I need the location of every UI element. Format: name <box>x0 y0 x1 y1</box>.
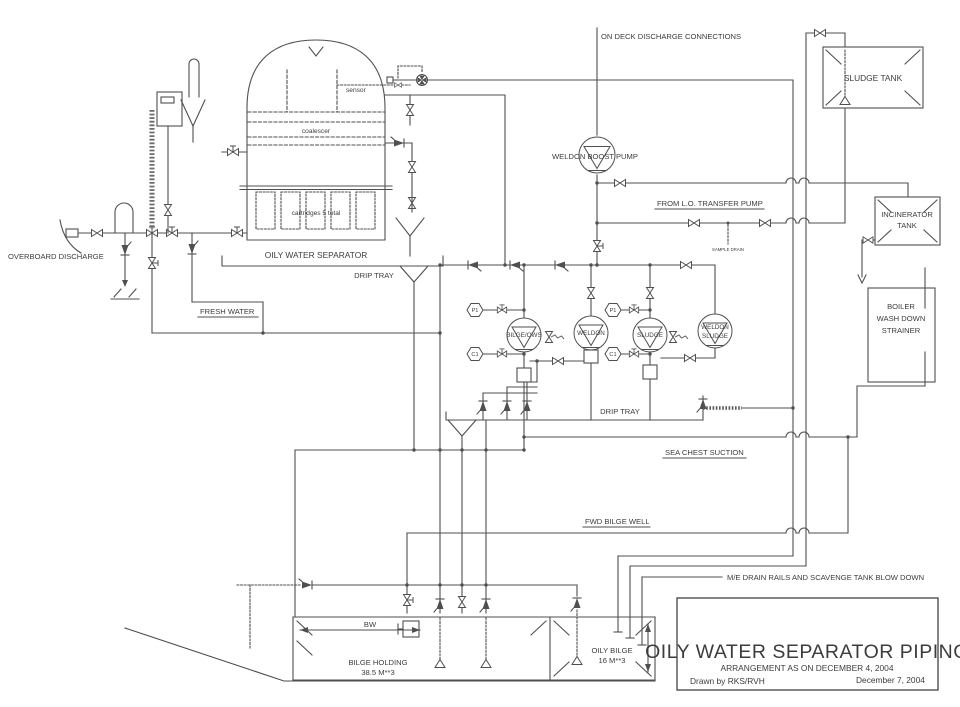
on-deck-label: ON DECK DISCHARGE CONNECTIONS <box>601 32 741 41</box>
boiler-label-2: WASH DOWN <box>877 314 926 323</box>
pump-weldon-sludge-label-2: SLUDGE <box>702 333 728 340</box>
fresh-water-check-valve-icon <box>188 241 198 254</box>
weldon-sludge-pump-icon <box>698 314 732 348</box>
drip-tray-lower-label: DRIP TRAY <box>600 407 640 416</box>
incinerator-outlet-valve-icon <box>863 237 873 243</box>
bilge-holding-label-2: 38.5 M**3 <box>361 668 394 677</box>
drawing-subtitle: ARRANGEMENT AS ON DECEMBER 4, 2004 <box>721 663 894 673</box>
fresh-water-label: FRESH WATER <box>200 307 255 316</box>
weldon-boost-pump-label: WELDON BOOST PUMP <box>552 152 638 161</box>
sludge-sounding-icon <box>840 97 850 105</box>
vent-valve-icon <box>407 105 414 116</box>
incinerator-label-1: INCINERATOR <box>881 210 933 219</box>
fresh-water-group: FRESH WATER <box>152 233 440 335</box>
shell-check-valve-icon <box>391 137 404 147</box>
weldon-riser-valve-icon <box>588 288 595 299</box>
manifold-check1-icon <box>468 261 481 271</box>
overboard-valve-icon <box>92 230 103 237</box>
sludge-tank-valve-icon <box>815 30 826 37</box>
sludge-relief-icon <box>670 332 689 343</box>
sensor-label: sensor <box>346 87 367 94</box>
pump-weldon-sludge-label-1: WELDON <box>701 324 729 331</box>
motor-valve-icon <box>417 75 428 86</box>
boiler-wash-down-strainer: BOILER WASH DOWN STRAINER <box>868 268 935 386</box>
controller-valve-icon <box>165 205 172 216</box>
gauge-p1-bilge-label: P1 <box>472 308 479 314</box>
bilge-holding-label-1: BILGE HOLDING <box>348 658 407 667</box>
oily-bilge-label-2: 16 M**3 <box>598 656 625 665</box>
oily-water-separator-vessel: sensor coalescer cartridges 5 total OILY… <box>222 40 410 260</box>
lo-line-valve2-icon <box>760 220 771 227</box>
bilge-sounding1-icon <box>435 660 445 668</box>
sludge-tank: SLUDGE TANK <box>806 30 923 109</box>
sludge-tank-label: SLUDGE TANK <box>844 73 903 83</box>
boiler-label-3: STRAINER <box>882 326 921 335</box>
drain-check-valve-icon <box>121 242 131 255</box>
gauge-p1-sludge-label: P1 <box>610 308 617 314</box>
drip-tray-upper-label: DRIP TRAY <box>354 271 394 280</box>
pump-sludge-label: SLUDGE <box>637 332 663 339</box>
cartridges-label: cartridges 5 total <box>292 210 341 217</box>
bilge-riser-valve2-icon <box>459 597 466 608</box>
sensor-valve-icon <box>394 83 401 88</box>
boost-suction-valve-icon <box>594 241 604 252</box>
title-block: OILY WATER SEPARATOR PIPING ARRANGEMENT … <box>645 598 960 690</box>
sample-drain-label: SAMPLE DRAIN <box>712 247 744 252</box>
bw-label: BW <box>364 620 377 629</box>
oily-bilge-check-icon <box>571 598 581 611</box>
bilge-sounding2-icon <box>481 660 491 668</box>
tank-top-check-icon <box>299 579 312 589</box>
gauge-c1-bilge-label: C1 <box>471 352 478 358</box>
me-drain-label: M/E DRAIN RAILS AND SCAVENGE TANK BLOW D… <box>727 573 924 582</box>
tray-drain-check-icon <box>697 399 707 412</box>
lo-line-valve1-icon <box>689 220 700 227</box>
incinerator-tank: INCINERATOR TANK <box>858 197 940 283</box>
overboard-discharge-group: OVERBOARD DISCHARGE <box>8 59 247 333</box>
weldon-sludge-outlet-valve-icon <box>685 355 696 362</box>
drawing-title: OILY WATER SEPARATOR PIPING <box>645 641 960 663</box>
piping-diagram: sensor coalescer cartridges 5 total OILY… <box>0 0 960 707</box>
drawn-by: Drawn by RKS/RVH <box>690 676 765 686</box>
bilge-riser-check2-icon <box>480 599 490 612</box>
manifold-check3-icon <box>555 261 568 271</box>
incinerator-label-2: TANK <box>897 221 917 230</box>
sludge-riser-valve-icon <box>647 288 654 299</box>
shell-drain-valve-icon <box>409 162 416 173</box>
diagram-canvas: sensor coalescer cartridges 5 total OILY… <box>0 0 960 707</box>
boiler-label-1: BOILER <box>887 302 915 311</box>
pump-weldon-label: WELDON <box>577 330 605 337</box>
gauge-valve3-icon <box>629 305 638 313</box>
coalescer-label: coalescer <box>302 128 331 135</box>
separator-inlet-valve-icon <box>232 227 243 237</box>
bilge-ows-relief-icon <box>546 332 565 343</box>
tray-check2-icon <box>501 401 511 414</box>
riser-valve-icon <box>149 258 159 269</box>
tray-check3-icon <box>521 401 531 414</box>
oily-bilge-sounding-icon <box>572 657 582 665</box>
drawing-date: December 7, 2004 <box>856 675 925 685</box>
gauge-valve2-icon <box>497 349 506 357</box>
bilge-riser-valve1-icon <box>404 595 414 606</box>
fwd-bilge-well-label: FWD BILGE WELL <box>585 517 650 526</box>
gauge-valve4-icon <box>629 349 638 357</box>
tray-check1-icon <box>477 401 487 414</box>
oily-bilge-label-1: OILY BILGE <box>591 646 632 655</box>
boost-pump-group: ON DECK DISCHARGE CONNECTIONS WELDON BOO… <box>552 28 908 265</box>
weldon-sludge-disch-valve-icon <box>681 262 692 269</box>
overboard-discharge-label: OVERBOARD DISCHARGE <box>8 252 104 261</box>
pump-bilge-ows-label: BILGE/OWS <box>506 332 541 339</box>
bilge-holding-tank: BW BILGE HOLDING 38.5 M**3 OILY BILGE 16… <box>125 617 655 681</box>
right-vertical-mains <box>793 33 806 566</box>
from-lo-label: FROM L.O. TRANSFER PUMP <box>657 199 763 208</box>
gauge-c1-sludge-label: C1 <box>609 352 616 358</box>
boost-discharge-valve-icon <box>615 180 626 187</box>
sea-chest-label: SEA CHEST SUCTION <box>665 448 744 457</box>
upper-drip-tray: DRIP TRAY <box>222 256 443 450</box>
shell-inlet-valve-icon <box>228 146 239 156</box>
cross-valve-icon <box>553 358 564 365</box>
gauge-valve1-icon <box>497 305 506 313</box>
pumps-group: BILGE/OWS P1 C1 WELDON SLUDGE P1 <box>467 265 732 450</box>
separator-label: OILY WATER SEPARATOR <box>265 250 368 260</box>
manifold-check2-icon <box>510 261 523 271</box>
bilge-riser-check1-icon <box>434 599 444 612</box>
